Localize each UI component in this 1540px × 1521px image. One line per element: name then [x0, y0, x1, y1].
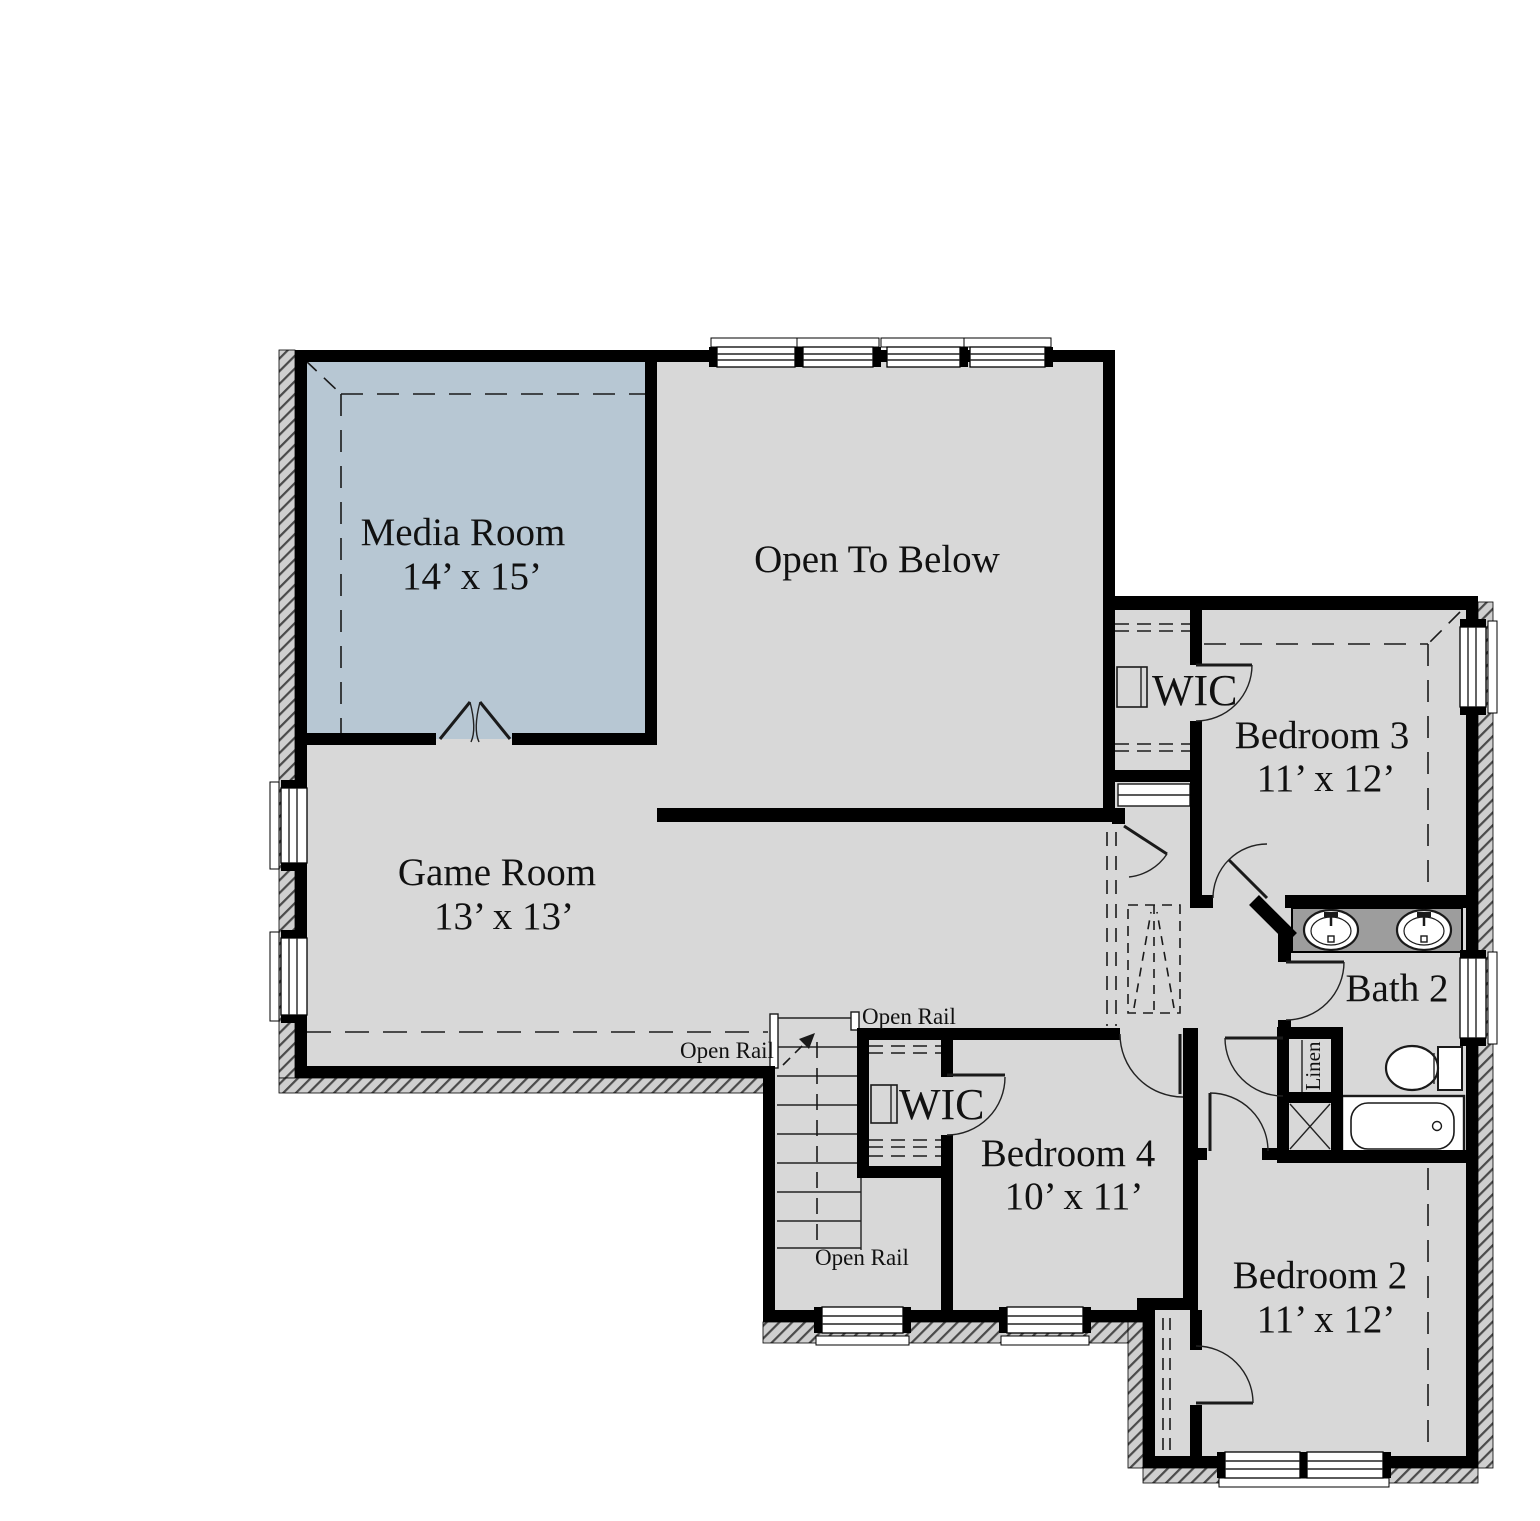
bedroom-2-label: Bedroom 2	[1233, 1254, 1407, 1297]
window	[270, 930, 307, 1023]
bedroom-4-label: Bedroom 4	[981, 1132, 1155, 1175]
open-to-below-label: Open To Below	[754, 538, 1000, 581]
window	[1217, 1452, 1391, 1487]
bedroom-3-label: Bedroom 3	[1235, 714, 1409, 757]
bath-2-label: Bath 2	[1346, 967, 1449, 1010]
media-room-label: Media Room	[361, 511, 566, 554]
linen-label: Linen	[1301, 1041, 1325, 1090]
window	[709, 338, 803, 367]
game-room-label: Game Room	[398, 851, 596, 894]
sink-right	[1397, 910, 1451, 950]
game-room-dims: 13’ x 13’	[434, 895, 574, 938]
bathtub	[1342, 1096, 1464, 1156]
bedroom-2-dims: 11’ x 12’	[1257, 1298, 1396, 1341]
window	[1460, 950, 1497, 1046]
window	[814, 1307, 911, 1345]
window	[881, 338, 968, 367]
wic-bed3-label: WIC	[1152, 666, 1238, 715]
bedroom-3-dims: 11’ x 12’	[1257, 757, 1396, 800]
open-rail-top-label: Open Rail	[862, 1004, 956, 1029]
floor-plan: Media Room 14’ x 15’ Open To Below Game …	[0, 0, 1540, 1521]
window	[999, 1307, 1091, 1345]
open-rail-left-label: Open Rail	[680, 1038, 774, 1063]
sink-left	[1304, 910, 1358, 950]
window	[270, 780, 307, 871]
wic-bed4-label: WIC	[899, 1080, 985, 1129]
window	[1460, 619, 1497, 715]
window	[964, 338, 1053, 367]
toilet	[1386, 1046, 1462, 1090]
window	[797, 338, 881, 367]
floor-plan-page: Media Room 14’ x 15’ Open To Below Game …	[0, 0, 1540, 1521]
bedroom-4-dims: 10’ x 11’	[1005, 1175, 1144, 1218]
open-rail-bottom-label: Open Rail	[815, 1245, 909, 1270]
media-room-dims: 14’ x 15’	[402, 555, 542, 598]
